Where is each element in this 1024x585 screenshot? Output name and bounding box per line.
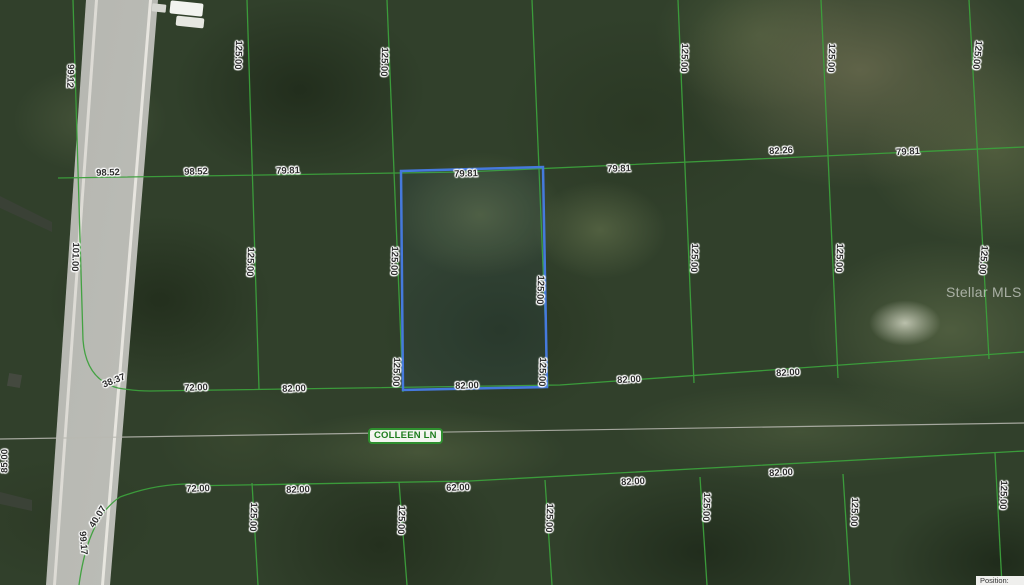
dimension-label: 125.00 — [700, 492, 712, 521]
dimension-label: 125.00 — [825, 43, 837, 72]
dimension-label: 125.00 — [247, 502, 259, 531]
dimension-label: 125.00 — [543, 503, 555, 532]
street-name-label: COLLEEN LN — [368, 428, 443, 444]
dimension-label: 125.00 — [395, 505, 407, 534]
dimension-label: 82.00 — [776, 367, 800, 379]
dimension-label: 82.26 — [769, 145, 793, 157]
dimension-label: 82.00 — [455, 380, 479, 392]
stellar-mls-watermark: Stellar MLS — [946, 284, 1022, 300]
dimension-label: 98.52 — [96, 167, 120, 179]
dimension-label: 72.00 — [184, 382, 208, 394]
highlighted-parcel-boundary[interactable] — [401, 167, 547, 390]
street-centerline — [0, 423, 1024, 439]
dimension-label: 79.81 — [896, 146, 920, 158]
dimension-label: 125.00 — [536, 357, 548, 386]
dimension-label: 125.00 — [232, 40, 244, 69]
dimension-label: 125.00 — [378, 47, 390, 76]
dimension-label: 79.81 — [607, 163, 631, 175]
dimension-label: 125.00 — [688, 243, 700, 272]
dimension-label: 79.81 — [454, 168, 478, 180]
dimension-label: 125.00 — [244, 247, 256, 276]
dimension-label: 62.00 — [446, 482, 470, 494]
dimension-label: 125.00 — [390, 357, 402, 386]
dimension-label: 99.17 — [77, 531, 90, 555]
parcel-boundaries-layer — [0, 0, 1024, 585]
dimension-label: 79.81 — [276, 165, 300, 177]
dimension-label: 125.00 — [388, 246, 400, 275]
dimension-label: 98.52 — [184, 166, 208, 178]
dimension-label: 85.00 — [0, 449, 11, 473]
dimension-label: 82.00 — [617, 374, 641, 386]
dimension-label: 125.00 — [848, 497, 860, 526]
dimension-label: 82.00 — [286, 484, 310, 496]
dimension-label: 125.00 — [678, 43, 690, 72]
dimension-label: 82.00 — [621, 476, 645, 488]
dimension-label: 125.00 — [534, 275, 546, 304]
dimension-label: 101.00 — [69, 242, 81, 271]
aerial-map[interactable]: 99.12125.00125.00125.00125.00125.0098.52… — [0, 0, 1024, 585]
position-indicator: Position: — [976, 576, 1024, 585]
dimension-label: 82.00 — [769, 467, 793, 479]
dimension-label: 99.12 — [64, 64, 76, 88]
dimension-label: 125.00 — [997, 480, 1009, 509]
dimension-label: 72.00 — [186, 483, 210, 495]
dimension-label: 82.00 — [282, 383, 306, 395]
dimension-label: 125.00 — [833, 243, 845, 272]
